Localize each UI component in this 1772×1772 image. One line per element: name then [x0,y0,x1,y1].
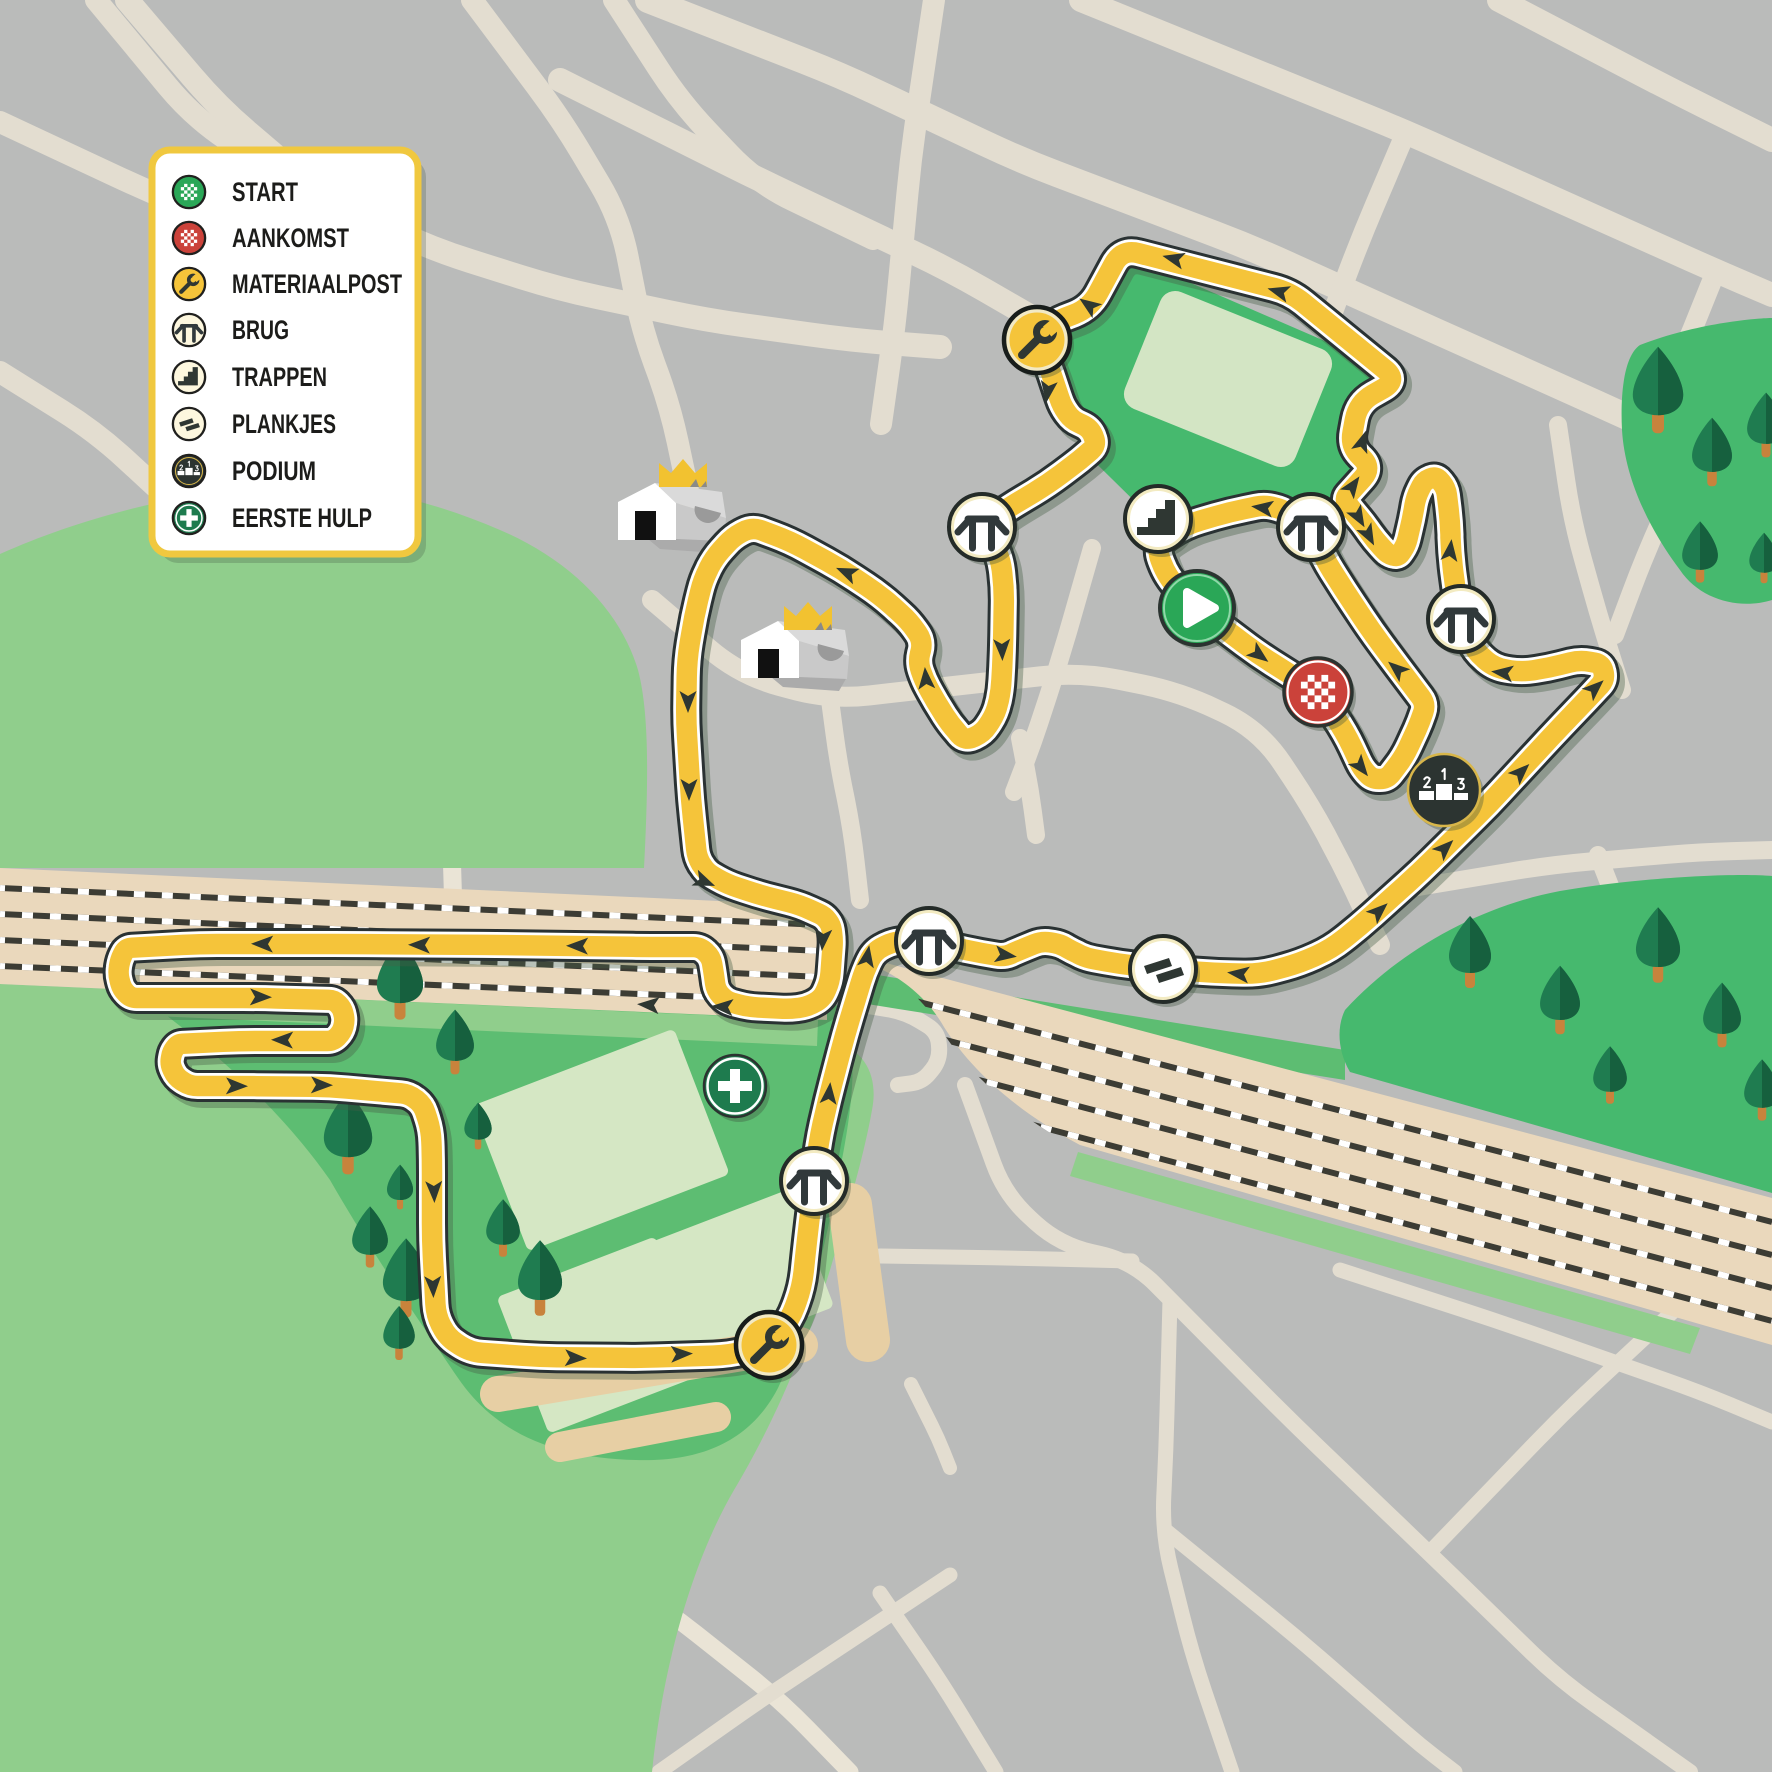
svg-text:PODIUM: PODIUM [232,456,316,486]
svg-text:MATERIAALPOST: MATERIAALPOST [232,269,402,299]
svg-text:PLANKJES: PLANKJES [232,409,336,439]
svg-text:START: START [232,177,298,207]
svg-text:EERSTE HULP: EERSTE HULP [232,503,372,533]
svg-text:AANKOMST: AANKOMST [232,223,349,253]
svg-text:TRAPPEN: TRAPPEN [232,362,327,392]
svg-text:BRUG: BRUG [232,315,289,345]
